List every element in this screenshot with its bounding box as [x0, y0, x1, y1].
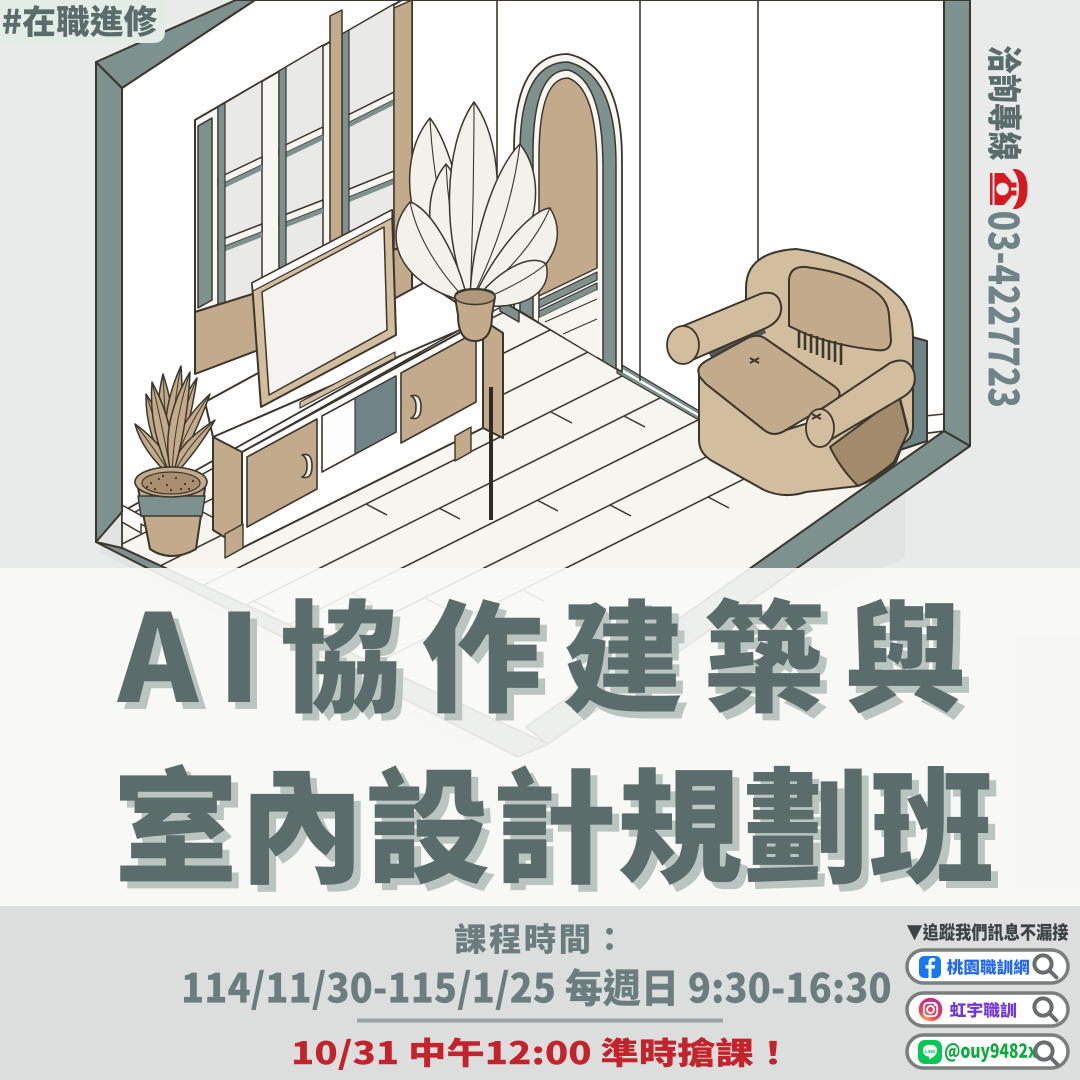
svg-text:LINE: LINE [925, 1049, 937, 1055]
